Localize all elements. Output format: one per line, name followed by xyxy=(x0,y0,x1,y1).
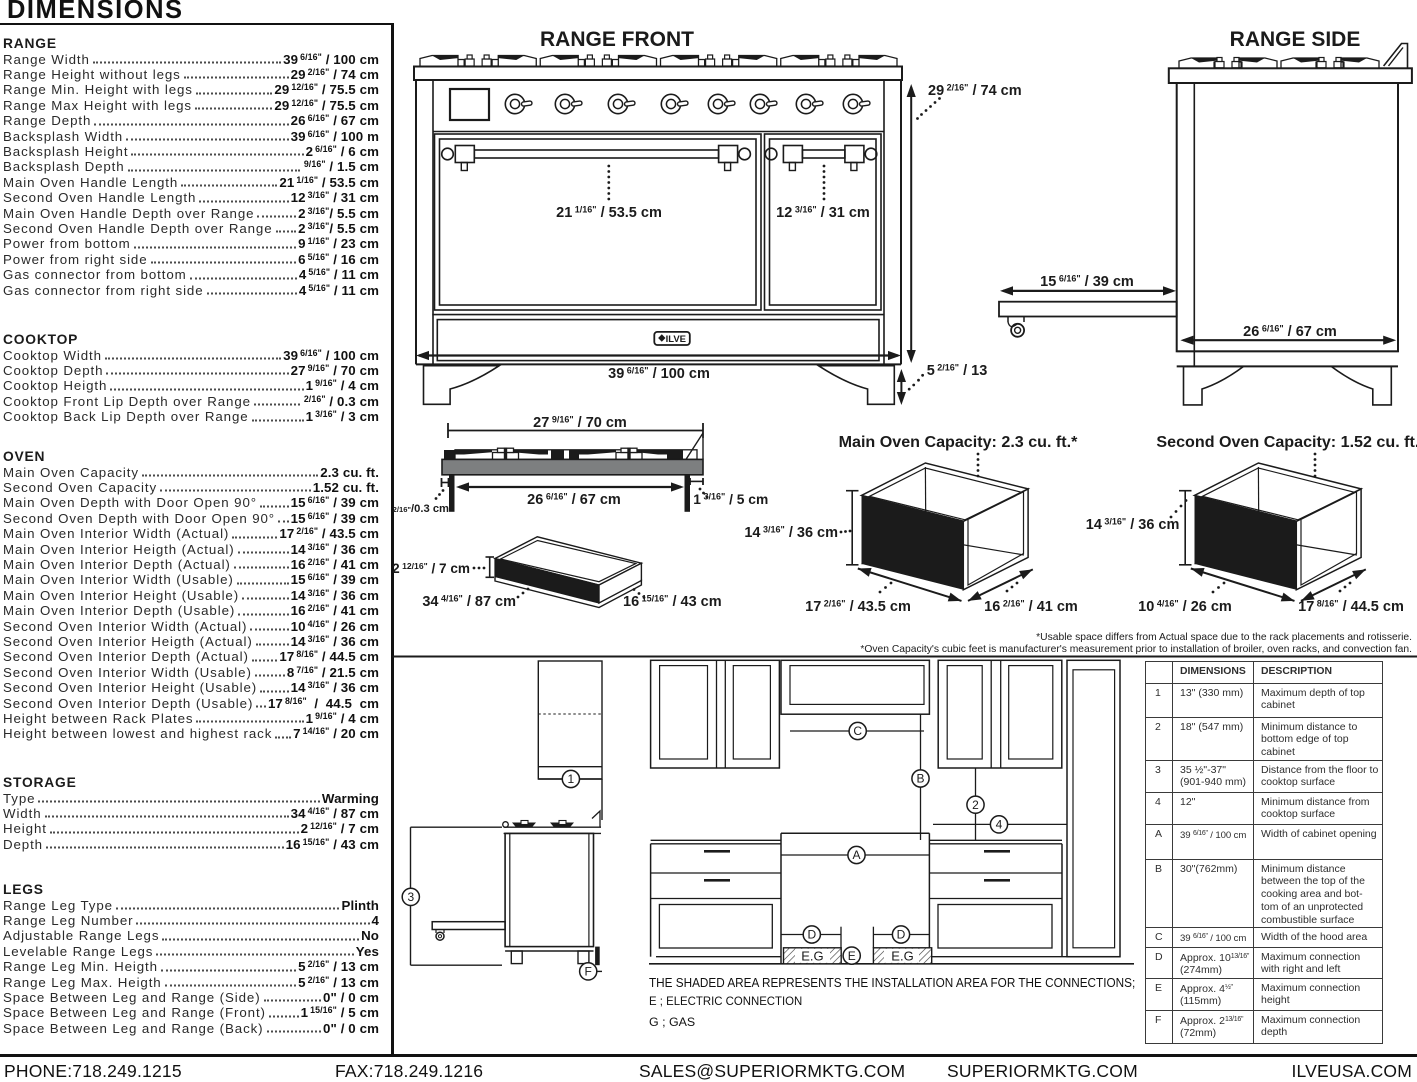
svg-text:17 8/16" / 44.5 cm: 17 8/16" / 44.5 cm xyxy=(1298,599,1404,616)
svg-text:12 3/16" / 31 cm: 12 3/16" / 31 cm xyxy=(776,205,870,222)
svg-text:E: E xyxy=(848,949,856,963)
svg-text:10 4/16" / 26 cm: 10 4/16" / 26 cm xyxy=(1138,599,1232,616)
svg-text:F: F xyxy=(585,965,592,979)
svg-text:C: C xyxy=(853,724,862,738)
svg-text:2 12/16" / 7 cm: 2 12/16" / 7 cm xyxy=(392,561,470,576)
svg-text:Main Oven Capacity: 2.3 cu. ft: Main Oven Capacity: 2.3 cu. ft.* xyxy=(839,433,1079,451)
svg-text:39 6/16" / 100 cm: 39 6/16" / 100 cm xyxy=(608,366,710,383)
svg-text:26 6/16" / 67 cm: 26 6/16" / 67 cm xyxy=(1243,324,1337,341)
svg-text:27 9/16" / 70 cm: 27 9/16" / 70 cm xyxy=(533,415,627,432)
svg-text:14 3/16" / 36 cm: 14 3/16" / 36 cm xyxy=(1086,517,1180,534)
svg-text:⯁ILVE: ⯁ILVE xyxy=(658,333,686,345)
svg-text:RANGE SIDE: RANGE SIDE xyxy=(1230,28,1361,51)
svg-text:4: 4 xyxy=(996,818,1003,832)
svg-text:1 3/16" / 5 cm: 1 3/16" / 5 cm xyxy=(693,492,768,508)
svg-text:5 2/16" / 13: 5 2/16" / 13 xyxy=(927,363,988,380)
svg-text:21 1/16" / 53.5 cm: 21 1/16" / 53.5 cm xyxy=(556,205,662,222)
svg-text:A: A xyxy=(852,848,860,862)
svg-text:34 4/16" / 87 cm: 34 4/16" / 87 cm xyxy=(422,594,516,611)
svg-text:E.G: E.G xyxy=(801,949,823,964)
svg-text:RANGE FRONT: RANGE FRONT xyxy=(540,28,694,51)
svg-text:1: 1 xyxy=(568,772,575,786)
svg-text:16 2/16" / 41 cm: 16 2/16" / 41 cm xyxy=(984,599,1078,616)
svg-text:2/16"/0.3 cm: 2/16"/0.3 cm xyxy=(393,503,449,515)
svg-text:17 2/16" / 43.5 cm: 17 2/16" / 43.5 cm xyxy=(805,599,911,616)
svg-text:E.G: E.G xyxy=(891,949,913,964)
svg-text:2: 2 xyxy=(972,798,979,812)
svg-text:D: D xyxy=(807,928,816,942)
svg-text:3: 3 xyxy=(407,890,414,904)
svg-text:29 2/16" / 74 cm: 29 2/16" / 74 cm xyxy=(928,83,1022,100)
svg-text:Second Oven Capacity: 1.52 cu.: Second Oven Capacity: 1.52 cu. ft.* xyxy=(1156,433,1417,451)
svg-text:B: B xyxy=(916,772,924,786)
svg-text:*Usable space differs from Act: *Usable space differs from Actual space … xyxy=(1036,632,1412,643)
svg-text:*Oven Capacity's cubic feet is: *Oven Capacity's cubic feet is manufactu… xyxy=(860,644,1412,655)
svg-text:16 15/16" / 43 cm: 16 15/16" / 43 cm xyxy=(623,594,722,611)
svg-text:15 6/16" / 39 cm: 15 6/16" / 39 cm xyxy=(1040,274,1134,291)
svg-text:26 6/16" / 67 cm: 26 6/16" / 67 cm xyxy=(527,492,621,509)
svg-text:D: D xyxy=(897,928,906,942)
svg-text:14 3/16" / 36 cm: 14 3/16" / 36 cm xyxy=(744,525,838,542)
